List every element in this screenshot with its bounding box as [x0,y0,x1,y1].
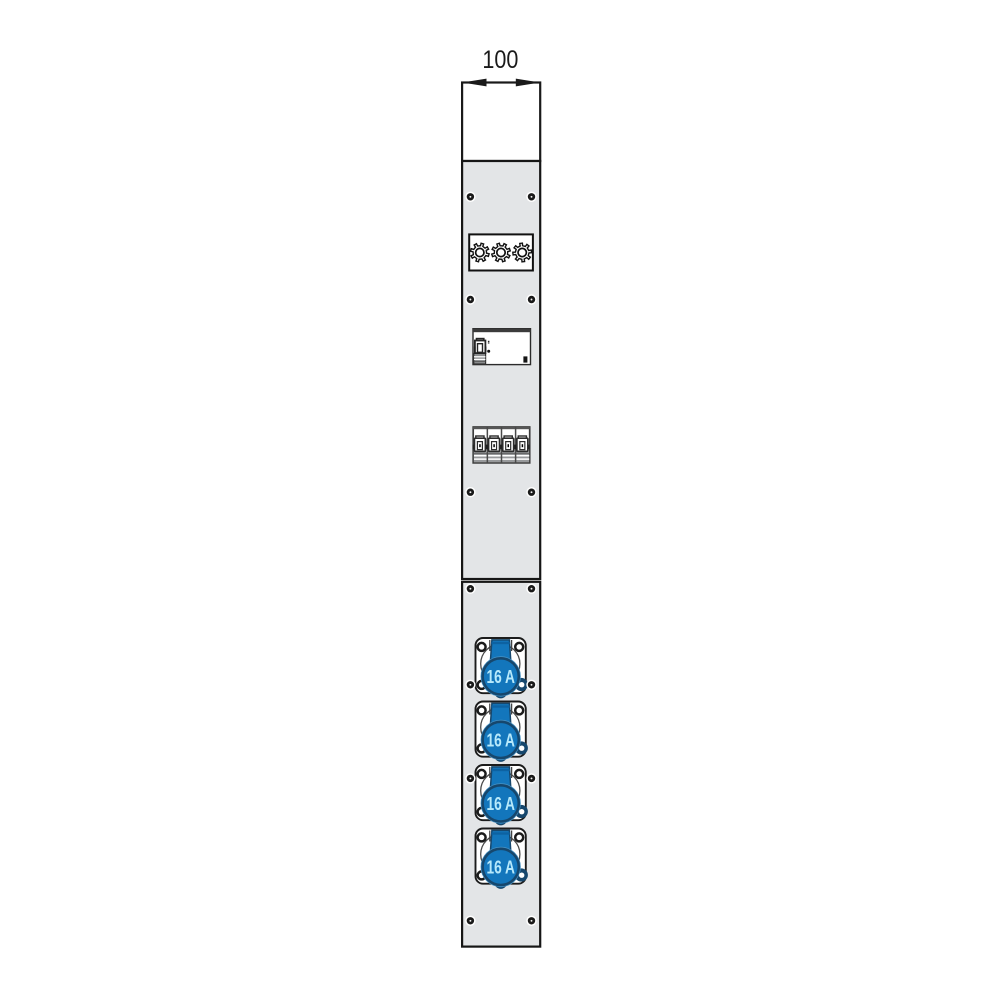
svg-text:100: 100 [482,46,518,74]
